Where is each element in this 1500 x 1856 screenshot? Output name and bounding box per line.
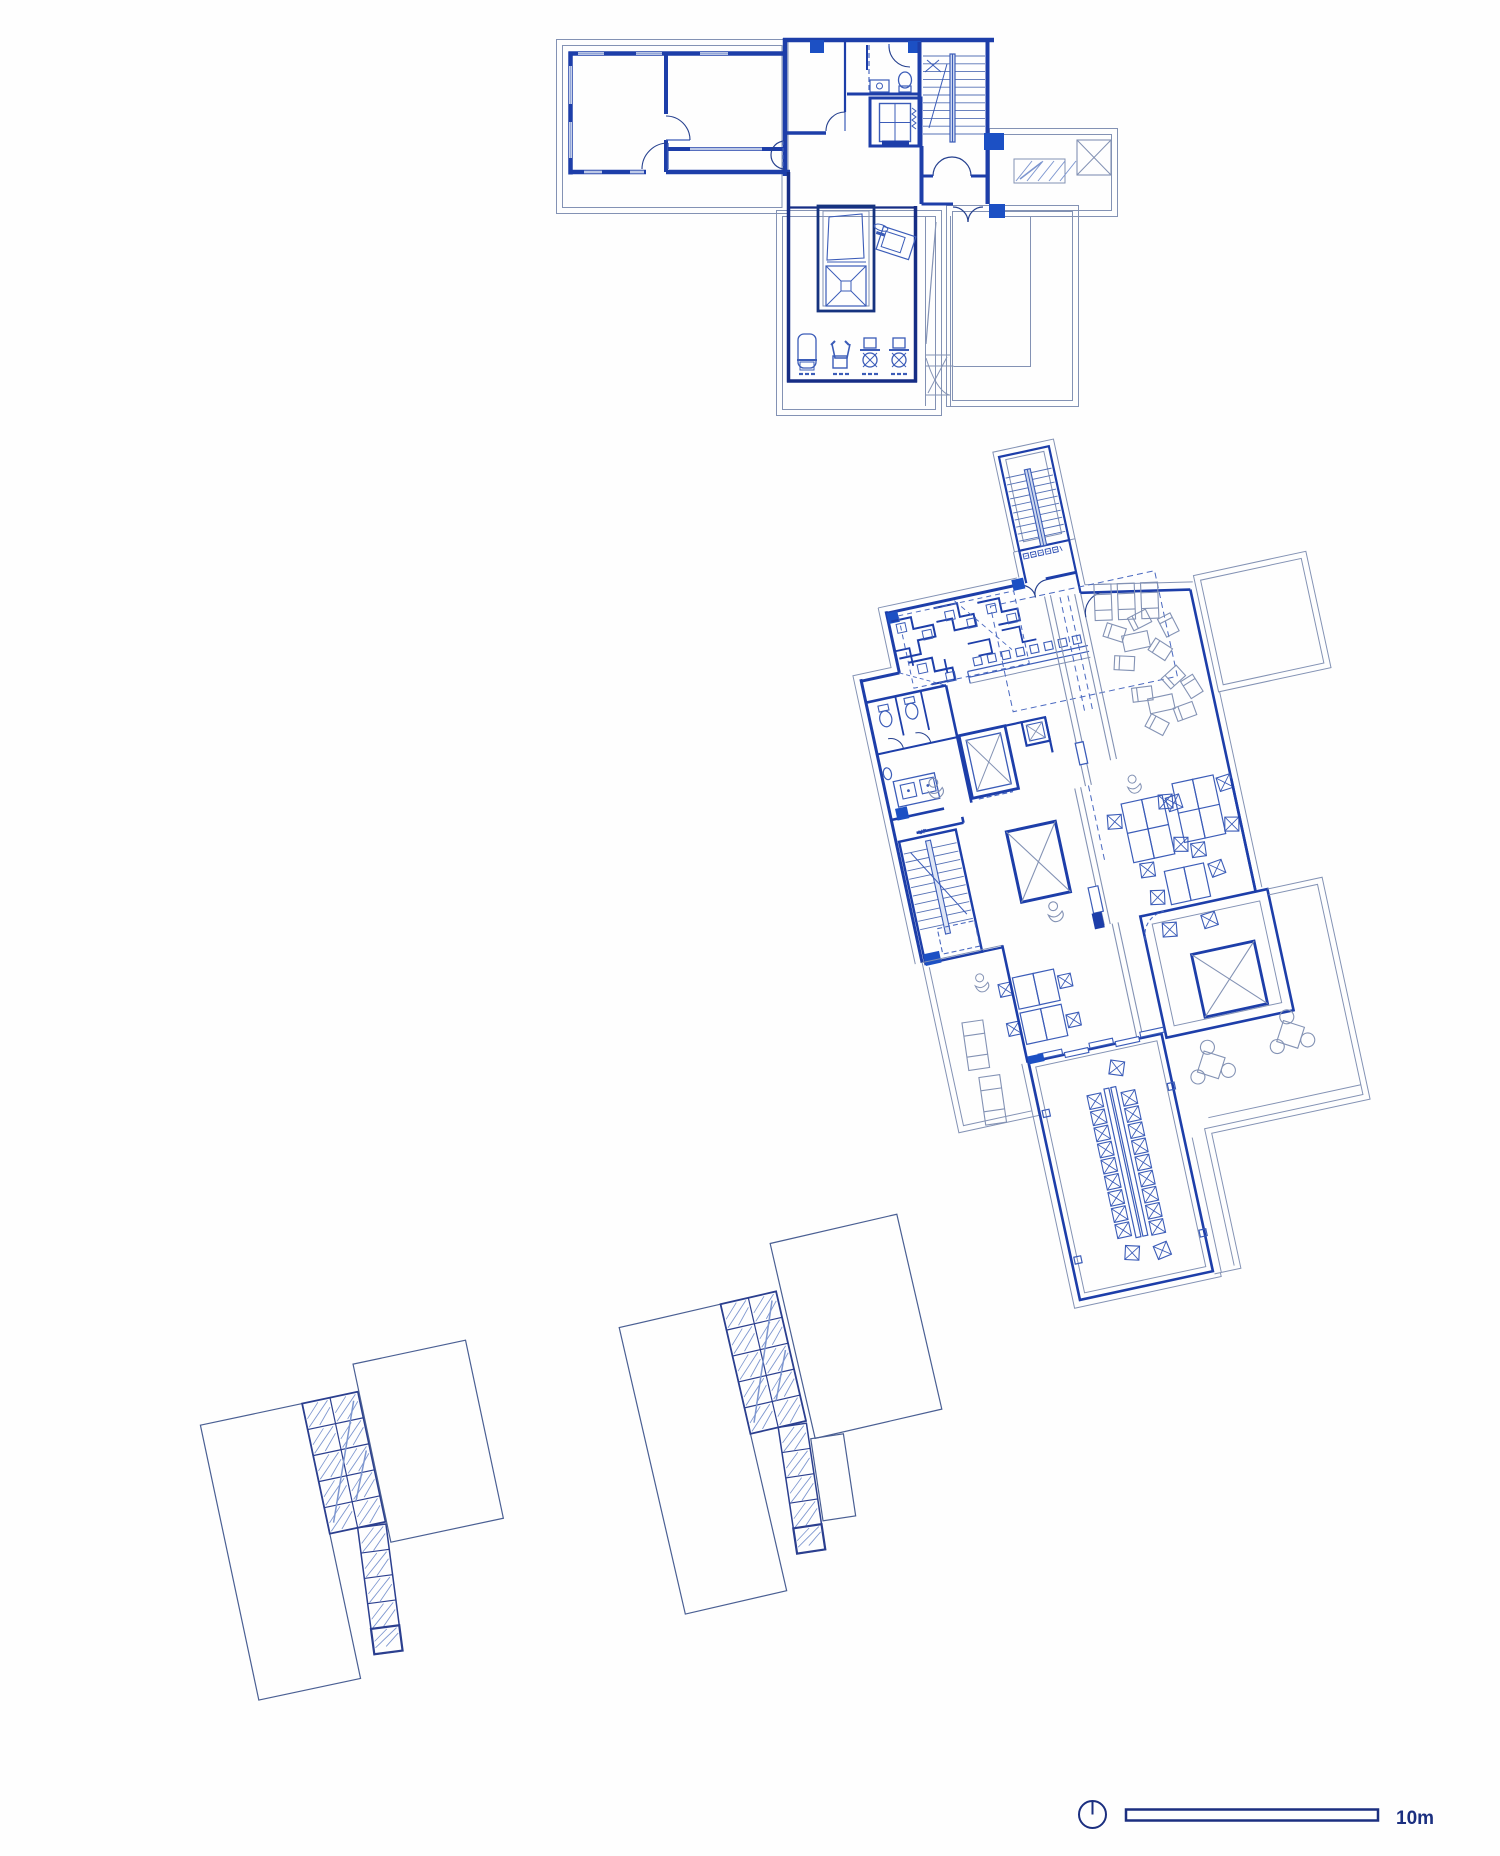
svg-text:10m: 10m bbox=[1396, 1808, 1434, 1829]
